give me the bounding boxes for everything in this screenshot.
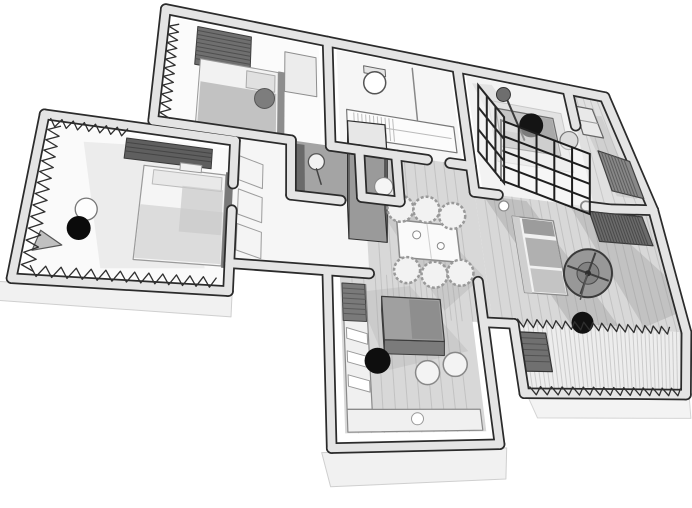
kitchen-white-stool-2 (443, 352, 467, 376)
dining-vase-1 (413, 231, 421, 239)
dining-chair-4 (394, 257, 420, 283)
master-black-stool (67, 216, 91, 240)
wall-segment-21 (362, 197, 400, 201)
kitchen-island-shade (409, 300, 443, 340)
dining-chair-2 (413, 197, 439, 223)
bedroom2-round-pillow (255, 88, 275, 108)
wall-segment-22 (396, 155, 400, 201)
bedroom2-headboard (278, 71, 285, 137)
bathroom-toilet (364, 72, 386, 94)
kitchen-sink (412, 413, 424, 425)
sofa-side-lamp (499, 201, 509, 211)
wall-segment-3 (328, 42, 331, 146)
study-floor-lamp-head (496, 88, 510, 102)
sofa-blanket (525, 238, 562, 269)
wall-segment-16 (233, 141, 235, 184)
wall-segment-6 (450, 163, 471, 166)
swivel-chair-hub (585, 270, 591, 276)
wall-segment-25 (332, 444, 500, 448)
master-bed-shadow (179, 186, 224, 236)
bedroom2-closet (285, 52, 317, 97)
kitchen-white-stool-1 (416, 361, 440, 385)
dining-vase-2 (437, 242, 444, 249)
column-niche (375, 178, 393, 196)
kitchen-black-stool (365, 348, 391, 374)
wall-segment-17 (228, 210, 232, 291)
dining-chair-6 (447, 260, 473, 286)
wall-segment-24 (327, 270, 331, 448)
wall-segment-20 (359, 150, 361, 197)
sofa-cushion-bottom (530, 268, 566, 294)
wall-segment-10 (475, 192, 498, 195)
apartment-3d-floorplan (0, 0, 692, 508)
dining-chair-3 (439, 203, 465, 229)
floorplan-rendering (0, 0, 692, 508)
wall-segment-12 (610, 209, 654, 210)
wall-segment-19 (291, 195, 341, 201)
dining-chair-5 (422, 262, 448, 288)
wall-segment-30 (483, 322, 513, 324)
kitchen-island-side-0 (384, 340, 444, 356)
vestibule-mirror (308, 154, 324, 170)
